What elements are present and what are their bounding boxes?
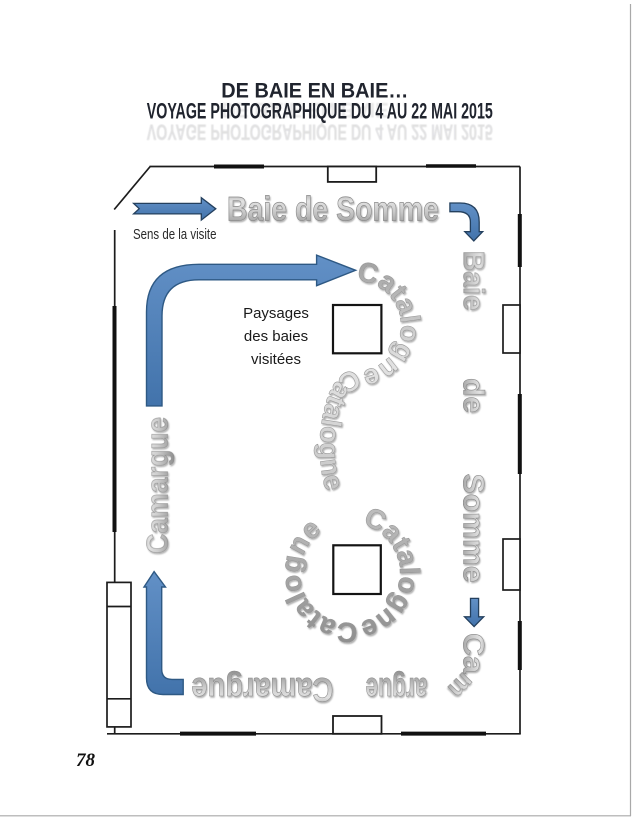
- svg-text:des baies: des baies: [244, 328, 308, 345]
- svg-text:Baie de Somme: Baie de Somme: [227, 191, 439, 229]
- svg-text:Camargue: Camargue: [140, 417, 175, 554]
- svg-text:argue: argue: [365, 670, 427, 708]
- svg-text:visitées: visitées: [251, 351, 301, 368]
- svg-text:Somme: Somme: [457, 474, 490, 583]
- svg-text:Sens de la visite: Sens de la visite: [133, 227, 217, 243]
- svg-text:Paysages: Paysages: [243, 305, 309, 322]
- svg-text:Baie: Baie: [457, 251, 490, 311]
- svg-text:VOYAGE PHOTOGRAPHIQUE DU 4 AU: VOYAGE PHOTOGRAPHIQUE DU 4 AU 22 MAI 201…: [147, 99, 493, 124]
- svg-text:Camargue: Camargue: [191, 670, 333, 708]
- svg-text:de: de: [457, 378, 490, 413]
- svg-text:78: 78: [76, 750, 96, 771]
